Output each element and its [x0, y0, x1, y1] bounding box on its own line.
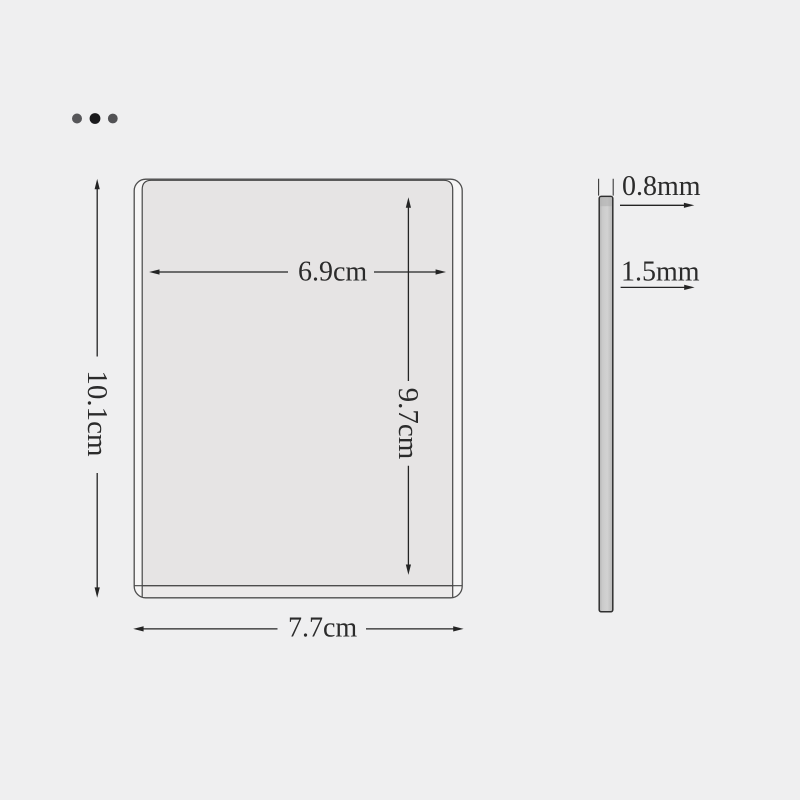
svg-text:10.1cm: 10.1cm: [81, 370, 113, 457]
svg-text:9.7cm: 9.7cm: [392, 388, 424, 460]
svg-text:1.5mm: 1.5mm: [621, 256, 700, 287]
svg-text:7.7cm: 7.7cm: [288, 613, 357, 644]
svg-text:0.8mm: 0.8mm: [622, 171, 701, 202]
svg-text:6.9cm: 6.9cm: [298, 257, 367, 288]
